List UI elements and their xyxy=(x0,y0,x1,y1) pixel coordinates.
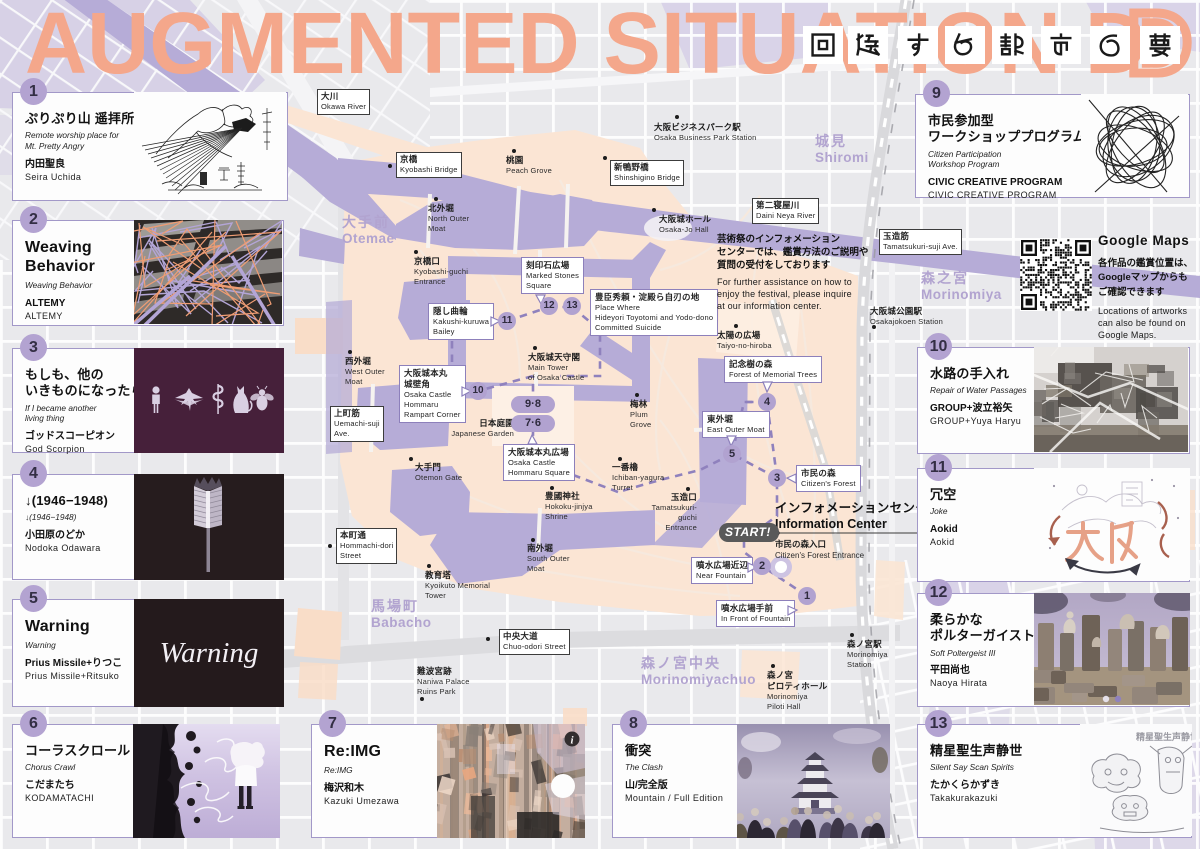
svg-text:Warning: Warning xyxy=(160,637,259,669)
svg-text:精星聖生声静世: 精星聖生声静世 xyxy=(1136,731,1192,742)
